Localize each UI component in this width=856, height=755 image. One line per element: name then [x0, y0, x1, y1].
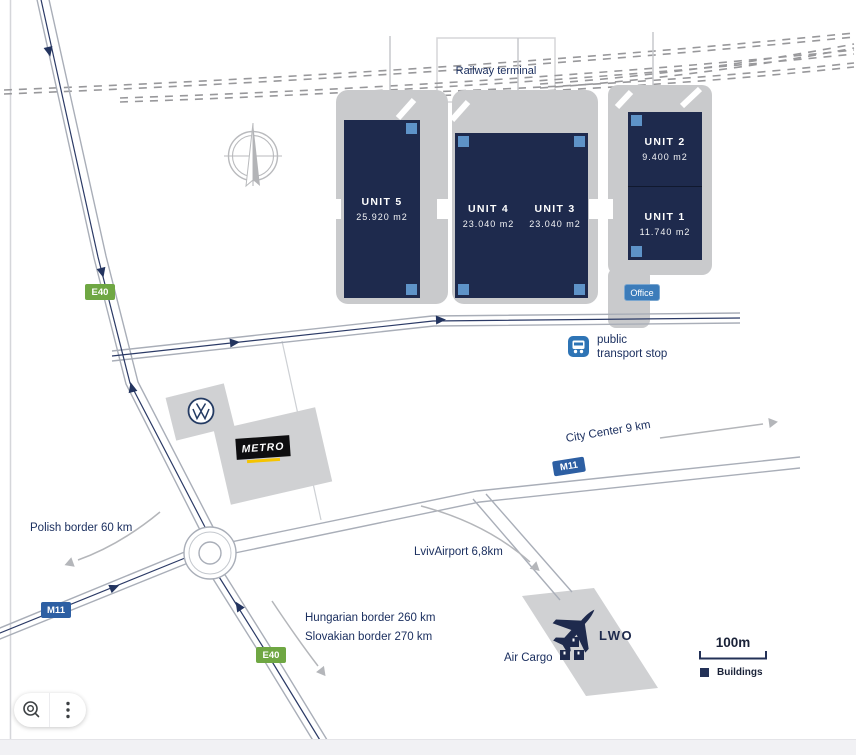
unit-area: 11.740 m2	[640, 227, 691, 237]
unit-area: 9.400 m2	[642, 152, 688, 162]
dock-marker	[574, 136, 585, 147]
buildings-legend-label: Buildings	[717, 666, 763, 680]
viewer-toolbar	[14, 693, 86, 727]
unit-4-building: UNIT 4 23.040 m2	[455, 133, 523, 298]
dock-marker	[574, 284, 585, 295]
buildings-legend-swatch	[700, 668, 709, 677]
e40-badge-south: E40	[256, 647, 286, 663]
public-transport-label: public transport stop	[597, 333, 667, 361]
railway-terminal-label: Railway terminal	[437, 64, 555, 78]
dock-marker	[406, 123, 417, 134]
e40-badge-west: E40	[85, 284, 115, 300]
dock-marker	[631, 115, 642, 126]
kebab-menu-icon	[65, 700, 71, 720]
unit-name: UNIT 5	[361, 196, 402, 208]
bus-icon	[568, 336, 589, 357]
airport-code-label: LWO	[599, 629, 633, 643]
unit-name: UNIT 4	[468, 203, 509, 215]
roundabout	[184, 527, 236, 579]
public-transport-line2: transport stop	[597, 347, 667, 361]
office-badge: Office	[624, 284, 660, 301]
vw-logo-icon	[189, 399, 214, 424]
unit-name: UNIT 2	[644, 136, 685, 148]
more-options-button[interactable]	[50, 693, 85, 727]
hungarian-border-label: Hungarian border 260 km	[305, 611, 435, 625]
metro-logo: METRO	[235, 435, 290, 460]
scale-bar	[700, 651, 766, 659]
polish-border-label: Polish border 60 km	[30, 521, 132, 535]
site-plan-map: Railway terminal UNIT 5 25.920 m2 UNIT 4…	[0, 0, 856, 755]
unit-area: 23.040 m2	[529, 219, 581, 229]
unit-area: 25.920 m2	[356, 212, 408, 222]
airport-runway	[522, 588, 658, 696]
unit-2-building: UNIT 2 9.400 m2	[628, 112, 702, 187]
lviv-airport-label: LvivAirport 6,8km	[414, 545, 503, 559]
zoom-button[interactable]	[14, 693, 49, 727]
unit-name: UNIT 1	[644, 211, 685, 223]
unit-3-building: UNIT 3 23.040 m2	[522, 133, 588, 298]
scale-label: 100m	[700, 636, 766, 650]
compass-icon	[224, 123, 282, 186]
unit-name: UNIT 3	[534, 203, 575, 215]
page-bottom-strip	[0, 739, 856, 755]
unit-1-building: UNIT 1 11.740 m2	[628, 187, 702, 260]
dock-marker	[406, 284, 417, 295]
unit-5-building: UNIT 5 25.920 m2	[344, 120, 420, 298]
unit-area: 23.040 m2	[463, 219, 515, 229]
magnifier-icon	[22, 700, 42, 720]
m11-badge-west: M11	[41, 602, 71, 618]
dock-marker	[458, 136, 469, 147]
slovakian-border-label: Slovakian border 270 km	[305, 630, 432, 644]
public-transport-line1: public	[597, 333, 667, 347]
bus-stop-icon	[568, 336, 589, 357]
air-cargo-label: Air Cargo	[504, 651, 553, 665]
dock-marker	[631, 246, 642, 257]
dock-marker	[458, 284, 469, 295]
